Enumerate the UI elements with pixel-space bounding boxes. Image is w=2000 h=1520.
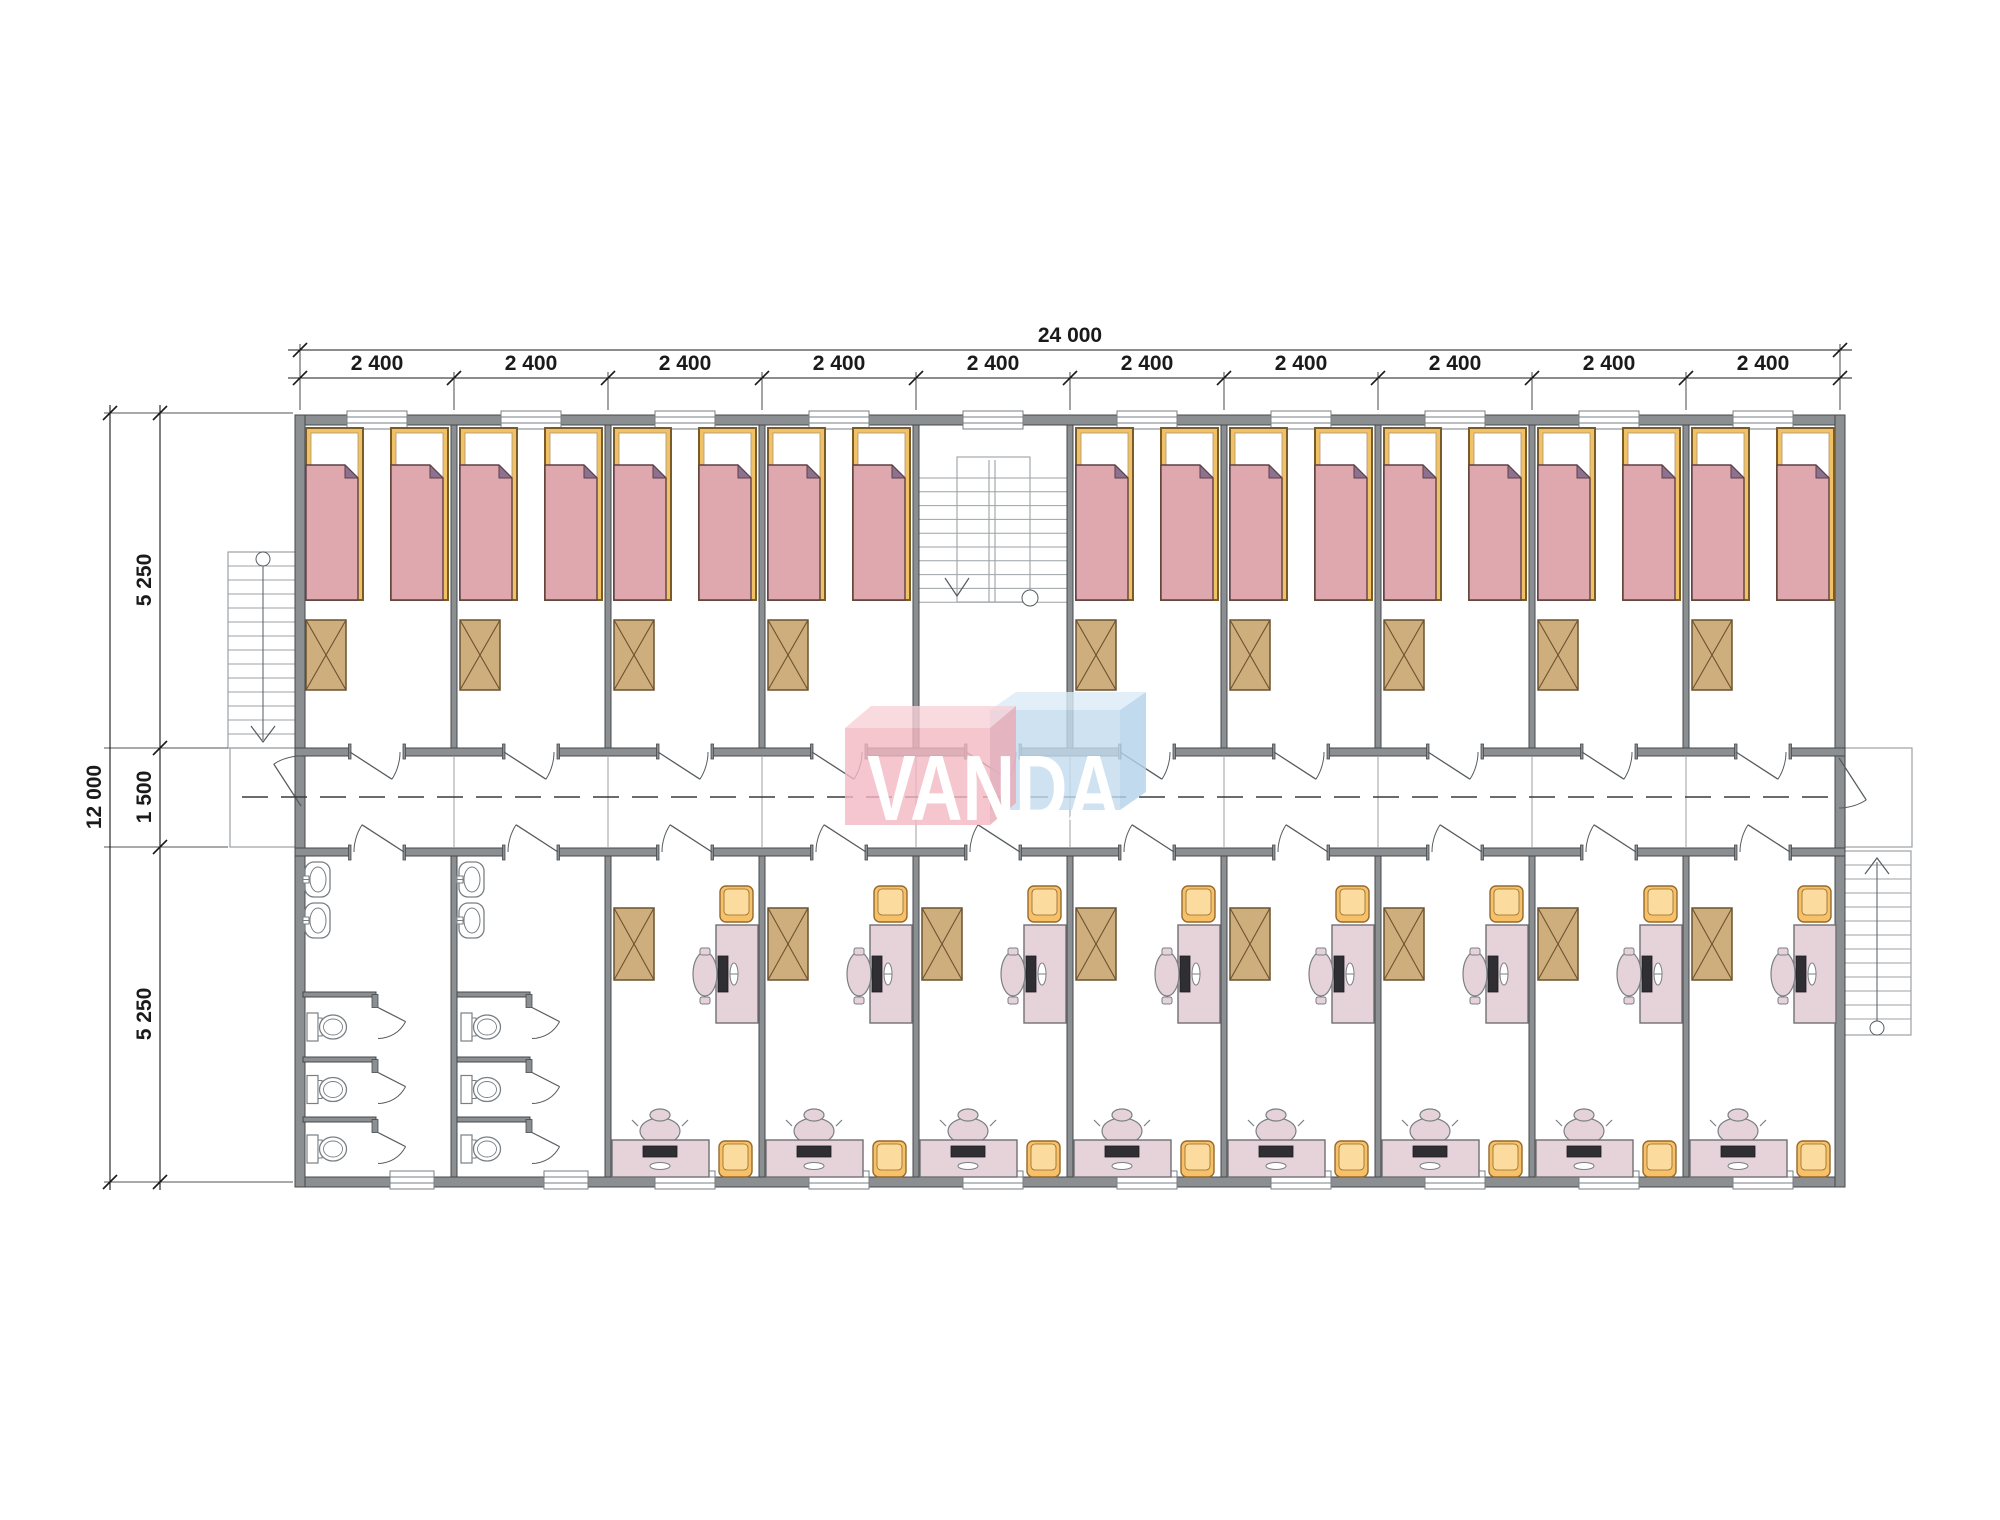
- bed: [1538, 428, 1595, 600]
- desk-chair: [1710, 1109, 1766, 1144]
- toilet-stall-door: [532, 1008, 560, 1039]
- bed: [853, 428, 910, 600]
- window: [1733, 411, 1793, 429]
- room-door: [1274, 752, 1324, 779]
- wardrobe-icon: [1230, 908, 1270, 980]
- blue-box-side-face: [1120, 692, 1146, 810]
- desk: [1382, 1140, 1479, 1177]
- toilet: [461, 1076, 501, 1104]
- office-room: [1228, 886, 1374, 1177]
- dimension-label: 2 400: [351, 352, 404, 375]
- stool: [1644, 886, 1677, 922]
- stool: [1643, 1141, 1676, 1177]
- office-room: [920, 886, 1066, 1177]
- bedroom: [460, 428, 602, 690]
- office-chair: [1309, 948, 1333, 1004]
- office-chair: [1463, 948, 1487, 1004]
- desk: [766, 1140, 863, 1177]
- stool: [1027, 1141, 1060, 1177]
- desk-chair: [1248, 1109, 1304, 1144]
- dimension-label: 2 400: [967, 352, 1020, 375]
- entry-landing-right: [1845, 748, 1912, 847]
- wardrobe-icon: [1230, 620, 1270, 690]
- dimension-label: 2 400: [1583, 352, 1636, 375]
- window: [1271, 411, 1331, 429]
- room-door: [816, 825, 866, 852]
- dimension-label: 2 400: [1737, 352, 1790, 375]
- bedroom: [1076, 428, 1218, 690]
- sink: [457, 862, 484, 897]
- bed: [391, 428, 448, 600]
- bedroom: [1538, 428, 1680, 690]
- dimension-label: 5 250: [133, 554, 156, 607]
- room-door: [1124, 825, 1174, 852]
- wardrobe-icon: [1538, 908, 1578, 980]
- office-chair: [847, 948, 871, 1004]
- office-chair: [1771, 948, 1795, 1004]
- office-chair: [1001, 948, 1025, 1004]
- room-door: [1278, 825, 1328, 852]
- watermark-text: VANDA: [867, 736, 1120, 840]
- toilet: [461, 1135, 501, 1163]
- room-door: [662, 825, 712, 852]
- room-door: [504, 752, 554, 779]
- bed: [1161, 428, 1218, 600]
- stool: [1336, 886, 1369, 922]
- stool: [1489, 1141, 1522, 1177]
- stool: [1797, 1141, 1830, 1177]
- toilet: [461, 1013, 501, 1041]
- wardrobe-icon: [1384, 908, 1424, 980]
- dimension-label: 5 250: [133, 988, 156, 1041]
- window: [544, 1171, 588, 1189]
- stool: [874, 886, 907, 922]
- central-staircase: [919, 457, 1067, 606]
- dimension-label: 2 400: [1121, 352, 1174, 375]
- desk-chair: [940, 1109, 996, 1144]
- toilet-stall-door: [378, 1073, 406, 1104]
- office-chair: [693, 948, 717, 1004]
- vanda-watermark: VANDA: [845, 692, 1146, 840]
- desk-chair: [1094, 1109, 1150, 1144]
- desk: [612, 1140, 709, 1177]
- room-door: [1428, 752, 1478, 779]
- wardrobe-icon: [1538, 620, 1578, 690]
- stool: [720, 886, 753, 922]
- room-door: [1736, 752, 1786, 779]
- bed: [1623, 428, 1680, 600]
- desk: [920, 1140, 1017, 1177]
- exterior-stair-left: [228, 552, 298, 748]
- window: [1425, 411, 1485, 429]
- bedroom: [1692, 428, 1834, 690]
- bed: [768, 428, 825, 600]
- window: [347, 411, 407, 429]
- stool: [873, 1141, 906, 1177]
- exterior-stair-right: [1843, 851, 1911, 1035]
- bedroom: [1384, 428, 1526, 690]
- toilet-stall-door: [532, 1133, 560, 1164]
- dimension-label: 24 000: [1038, 324, 1102, 347]
- toilet-stall-door: [532, 1073, 560, 1104]
- wardrobe-icon: [1692, 908, 1732, 980]
- pink-box-top-face: [845, 706, 1016, 728]
- room-door: [1432, 825, 1482, 852]
- stool: [1181, 1141, 1214, 1177]
- wardrobe-icon: [1384, 620, 1424, 690]
- desk-chair: [786, 1109, 842, 1144]
- stool: [1335, 1141, 1368, 1177]
- room-door: [1586, 825, 1636, 852]
- room-door: [350, 752, 400, 779]
- bed: [306, 428, 363, 600]
- dimension-label: 1 500: [133, 771, 156, 824]
- desk: [1690, 1140, 1787, 1177]
- bed: [1777, 428, 1834, 600]
- bed: [1076, 428, 1133, 600]
- sink: [303, 862, 330, 897]
- wardrobe-icon: [768, 908, 808, 980]
- floor-plan-canvas: 24 0002 4002 4002 4002 4002 4002 4002 40…: [0, 0, 2000, 1520]
- office-room: [612, 886, 758, 1177]
- toilet: [307, 1135, 347, 1163]
- toilet: [307, 1076, 347, 1104]
- window: [501, 411, 561, 429]
- desk-chair: [1556, 1109, 1612, 1144]
- stool: [1798, 886, 1831, 922]
- wardrobe-icon: [306, 620, 346, 690]
- office-chair: [1155, 948, 1179, 1004]
- desk: [1536, 1140, 1633, 1177]
- bedroom: [614, 428, 756, 690]
- office-chair: [1617, 948, 1641, 1004]
- office-room: [766, 886, 912, 1177]
- toilet-stall-door: [378, 1008, 406, 1039]
- stool: [1182, 886, 1215, 922]
- bedroom: [306, 428, 448, 690]
- window: [1579, 411, 1639, 429]
- room-door: [1582, 752, 1632, 779]
- dimension-label: 2 400: [659, 352, 712, 375]
- window: [1117, 411, 1177, 429]
- dimension-label: 12 000: [83, 765, 106, 829]
- bed: [1230, 428, 1287, 600]
- dimension-label: 2 400: [1275, 352, 1328, 375]
- wardrobe-icon: [768, 620, 808, 690]
- bed: [699, 428, 756, 600]
- dimension-label: 2 400: [505, 352, 558, 375]
- window: [655, 411, 715, 429]
- wardrobe-icon: [460, 620, 500, 690]
- window: [390, 1171, 434, 1189]
- toilet: [307, 1013, 347, 1041]
- wardrobe-icon: [614, 620, 654, 690]
- wardrobe-icon: [614, 908, 654, 980]
- office-room: [1690, 886, 1836, 1177]
- dimension-label: 2 400: [1429, 352, 1482, 375]
- room-door: [354, 825, 404, 852]
- wardrobe-icon: [922, 908, 962, 980]
- desk: [1228, 1140, 1325, 1177]
- stool: [1490, 886, 1523, 922]
- office-room: [1074, 886, 1220, 1177]
- office-room: [1382, 886, 1528, 1177]
- room-door: [658, 752, 708, 779]
- stool: [1028, 886, 1061, 922]
- bed: [1469, 428, 1526, 600]
- bedroom: [768, 428, 910, 690]
- bed: [1384, 428, 1441, 600]
- bed: [1692, 428, 1749, 600]
- bed: [1315, 428, 1372, 600]
- dimension-label: 2 400: [813, 352, 866, 375]
- desk: [1074, 1140, 1171, 1177]
- bed: [614, 428, 671, 600]
- sink: [303, 903, 330, 938]
- office-room: [1536, 886, 1682, 1177]
- toilet-stall-door: [378, 1133, 406, 1164]
- desk-chair: [1402, 1109, 1458, 1144]
- wardrobe-icon: [1076, 620, 1116, 690]
- window: [809, 411, 869, 429]
- sink: [457, 903, 484, 938]
- room-door: [508, 825, 558, 852]
- desk-chair: [632, 1109, 688, 1144]
- bedroom: [1230, 428, 1372, 690]
- bed: [545, 428, 602, 600]
- bed: [460, 428, 517, 600]
- drawing-sheet: 24 0002 4002 4002 4002 4002 4002 4002 40…: [0, 0, 2000, 1520]
- wardrobe-icon: [1692, 620, 1732, 690]
- window: [963, 411, 1023, 429]
- room-door: [1740, 825, 1790, 852]
- stool: [719, 1141, 752, 1177]
- wardrobe-icon: [1076, 908, 1116, 980]
